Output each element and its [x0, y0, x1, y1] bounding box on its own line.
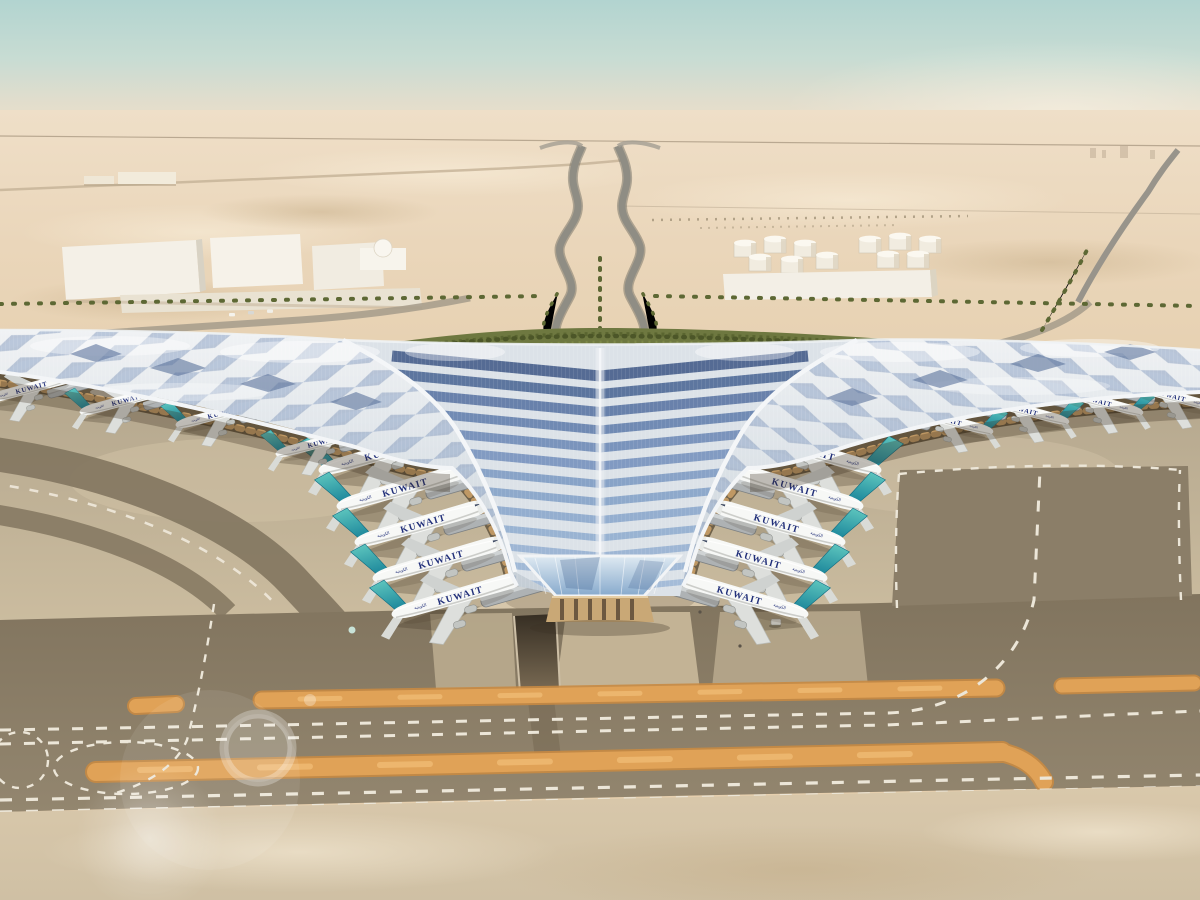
airport-aerial-rendering: KUWAIT الكويتية KUWAIT الكويتية	[0, 0, 1200, 900]
taxiway-vertical-right	[892, 466, 1192, 606]
rendering-canvas: KUWAIT الكويتية KUWAIT الكويتية	[0, 0, 1200, 900]
tank-farm-warehouse	[723, 270, 932, 300]
terminal-entrance	[530, 596, 670, 636]
